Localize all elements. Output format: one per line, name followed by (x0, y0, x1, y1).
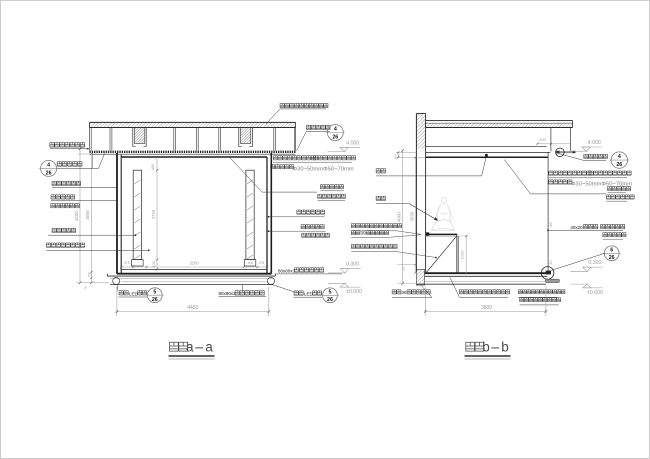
svg-text:a: a (186, 339, 194, 354)
svg-text:50: 50 (83, 286, 87, 290)
svg-text:4: 4 (334, 127, 337, 133)
svg-text:Φ30~50mmΦ50~70mm: Φ30~50mmΦ50~70mm (293, 166, 354, 172)
svg-text:26: 26 (616, 162, 622, 168)
svg-text:2750: 2750 (151, 209, 156, 219)
svg-text:150: 150 (401, 266, 405, 271)
svg-text:4450: 4450 (187, 305, 198, 311)
svg-text:a: a (205, 339, 213, 354)
svg-text:30: 30 (402, 290, 407, 295)
svg-text:26: 26 (46, 170, 52, 176)
svg-text:±0.000: ±0.000 (587, 290, 603, 296)
svg-text:0.300: 0.300 (588, 260, 601, 266)
svg-text:3550: 3550 (409, 211, 414, 221)
svg-text:4.000: 4.000 (588, 140, 601, 146)
svg-text:40: 40 (548, 222, 553, 227)
svg-text:26: 26 (152, 297, 158, 303)
svg-text:LED: LED (304, 292, 314, 297)
svg-text:4: 4 (47, 163, 50, 169)
svg-text:100: 100 (87, 272, 91, 277)
svg-text:3200: 3200 (189, 260, 199, 265)
svg-text:400: 400 (150, 163, 155, 170)
svg-text:0.300: 0.300 (346, 262, 359, 268)
svg-text:5: 5 (153, 289, 156, 295)
svg-text:b: b (501, 339, 509, 354)
svg-text:150: 150 (394, 154, 398, 159)
svg-text:3800: 3800 (481, 305, 492, 311)
svg-text:b: b (482, 339, 490, 354)
svg-text:4: 4 (618, 154, 621, 160)
svg-text:80x80x3: 80x80x3 (219, 291, 237, 296)
svg-text:1200: 1200 (460, 250, 465, 260)
svg-text:4000: 4000 (74, 211, 79, 221)
svg-text:4000: 4000 (396, 212, 401, 222)
svg-text:26: 26 (332, 134, 338, 140)
svg-text:±0.000: ±0.000 (346, 289, 362, 295)
svg-text:30: 30 (361, 231, 366, 236)
svg-text:5: 5 (329, 289, 332, 295)
svg-text:Φ30~50mmΦ50~70mm: Φ30~50mmΦ50~70mm (571, 182, 632, 188)
svg-text:LED: LED (129, 291, 139, 296)
svg-text:26: 26 (609, 255, 615, 261)
svg-text:4.000: 4.000 (346, 140, 359, 146)
svg-text:200: 200 (539, 137, 546, 142)
svg-text:26: 26 (327, 297, 333, 303)
svg-text:20: 20 (548, 260, 553, 265)
svg-text:6: 6 (610, 247, 613, 253)
svg-text:3650: 3650 (85, 210, 90, 220)
svg-text:375: 375 (259, 261, 265, 265)
svg-text:40x20: 40x20 (570, 225, 583, 230)
svg-text:80x80x3: 80x80x3 (278, 268, 296, 273)
svg-text:400: 400 (248, 261, 254, 265)
svg-text:375: 375 (124, 261, 130, 265)
